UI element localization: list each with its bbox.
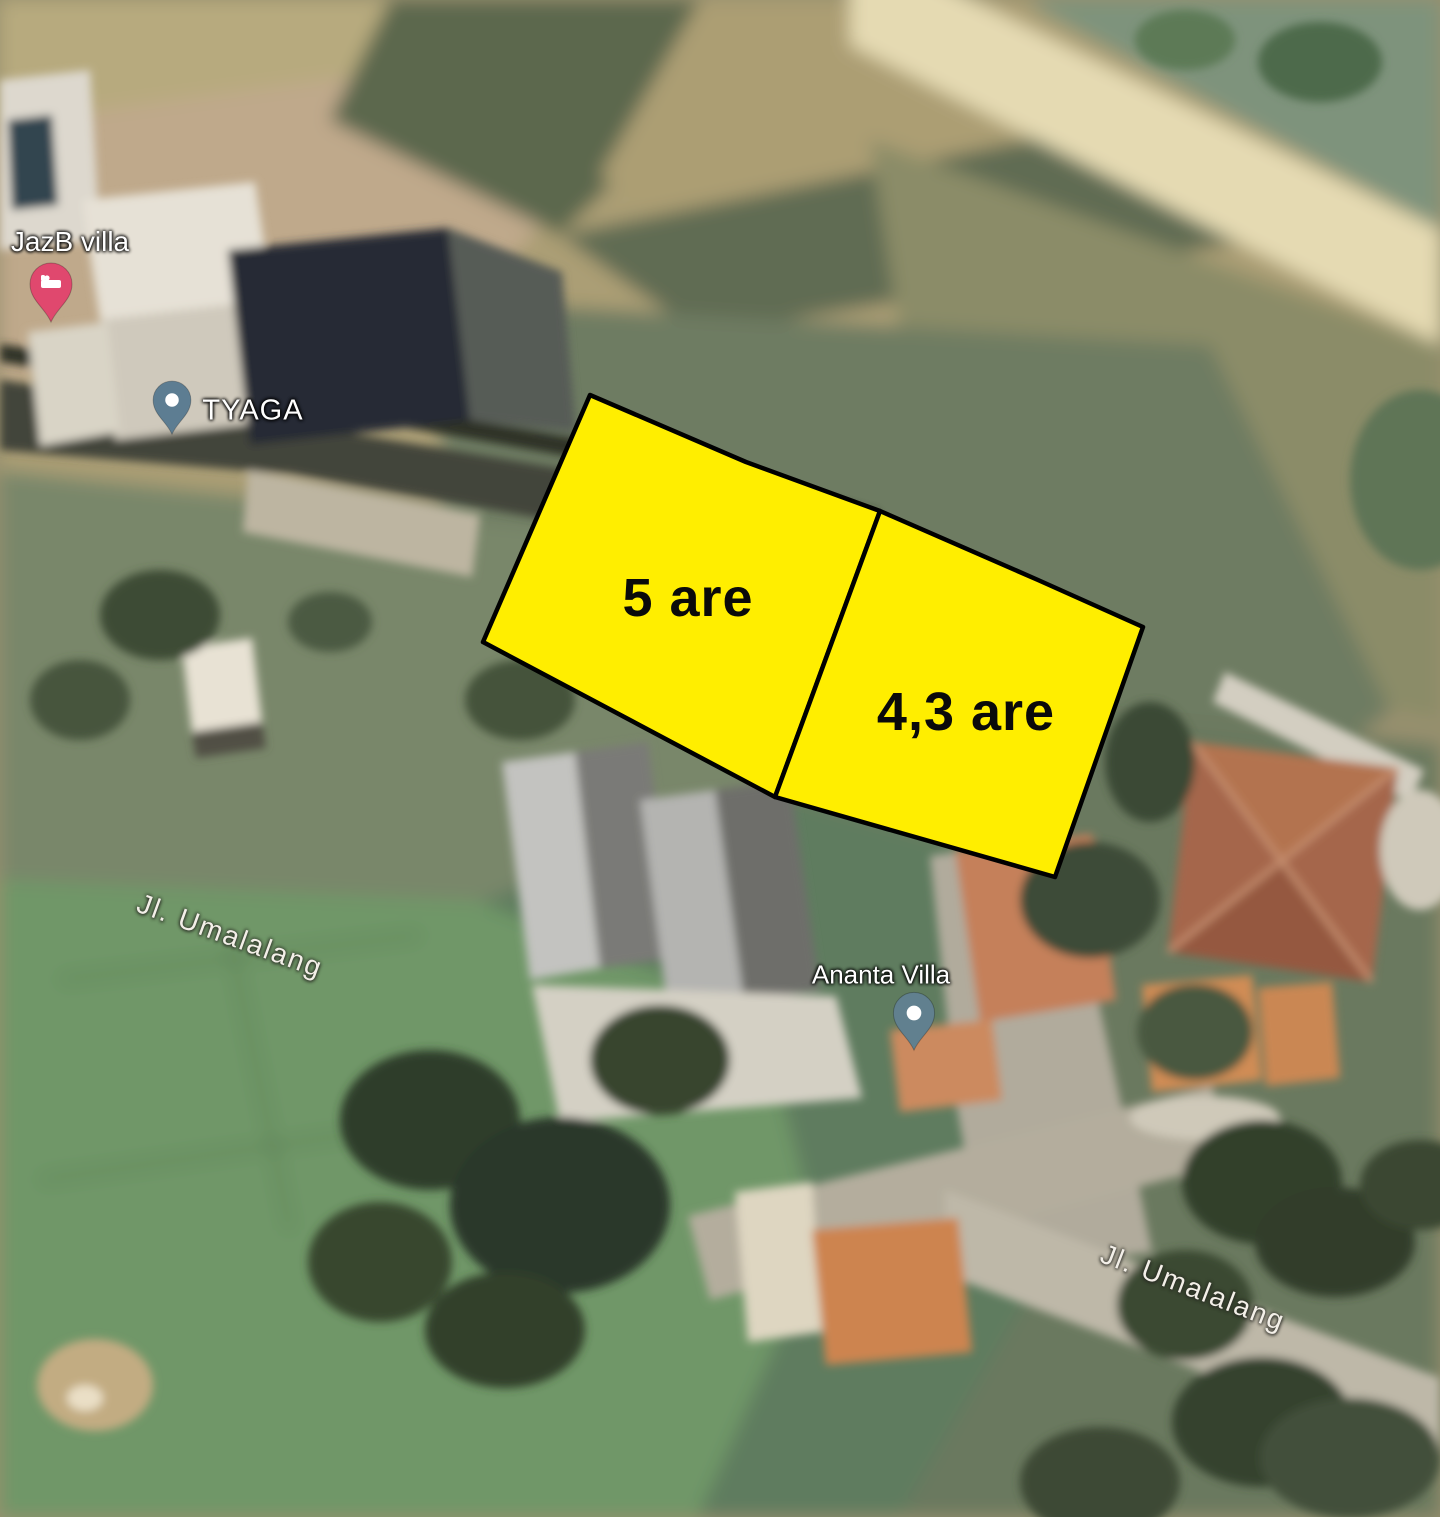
poi-label-ananta-villa[interactable]: Ananta Villa bbox=[812, 960, 950, 991]
poi-label-tyaga[interactable]: TYAGA bbox=[202, 395, 303, 428]
plot-area-label-5-are: 5 are bbox=[622, 567, 753, 629]
satellite-map: JazB villa TYAGA Ananta Villa Jl. Umalal… bbox=[0, 0, 1440, 1517]
poi-label-jazb-villa[interactable]: JazB villa bbox=[11, 226, 129, 258]
pin-dot bbox=[165, 393, 179, 407]
pin-dot bbox=[907, 1006, 922, 1021]
plot-area-label-4-3-are: 4,3 are bbox=[877, 681, 1055, 743]
